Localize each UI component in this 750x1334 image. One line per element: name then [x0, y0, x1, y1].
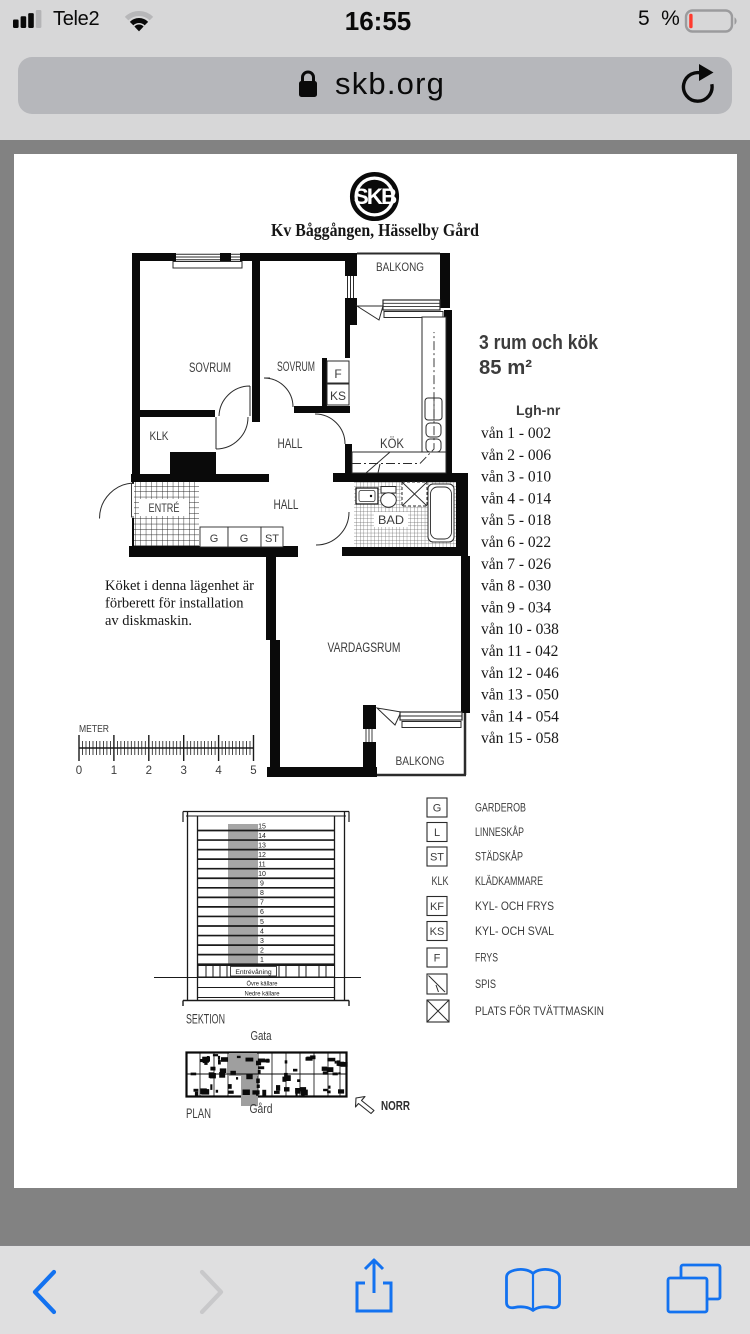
svg-text:2: 2 [260, 947, 264, 954]
svg-text:FRYS: FRYS [475, 953, 498, 965]
svg-text:9: 9 [260, 881, 264, 888]
svg-text:13: 13 [258, 842, 266, 849]
svg-text:METER: METER [79, 724, 109, 735]
svg-text:G: G [240, 533, 249, 545]
svg-text:KS: KS [330, 389, 346, 403]
svg-text:vån 3 - 010: vån 3 - 010 [481, 469, 551, 486]
svg-text:KS: KS [430, 926, 445, 938]
svg-text:vån 2 - 006: vån 2 - 006 [481, 447, 551, 464]
svg-text:1: 1 [260, 957, 264, 964]
svg-text:Entrévåning: Entrévåning [235, 968, 271, 976]
svg-text:GARDEROB: GARDEROB [475, 803, 526, 815]
svg-text:Kv Båggången, Hässelby Gård: Kv Båggången, Hässelby Gård [271, 220, 479, 240]
svg-text:vån 4 - 014: vån 4 - 014 [481, 490, 551, 507]
svg-text:BALKONG: BALKONG [376, 260, 424, 274]
svg-text:SKB: SKB [354, 184, 397, 209]
svg-text:PLATS FÖR TVÄTTMASKIN: PLATS FÖR TVÄTTMASKIN [475, 1006, 604, 1018]
svg-text:ST: ST [430, 852, 444, 864]
svg-text:vån 14 - 054: vån 14 - 054 [481, 708, 559, 725]
svg-text:Köket i denna lägenhet är: Köket i denna lägenhet är [105, 578, 254, 594]
svg-text:Gata: Gata [251, 1029, 272, 1043]
svg-text:SOVRUM: SOVRUM [277, 359, 315, 374]
svg-text:vån 1 - 002: vån 1 - 002 [481, 425, 551, 442]
svg-text:KF: KF [430, 901, 444, 913]
svg-text:Gård: Gård [250, 1102, 273, 1116]
svg-text:LINNESKÅP: LINNESKÅP [475, 826, 524, 839]
svg-text:vån 13 - 050: vån 13 - 050 [481, 687, 559, 704]
svg-text:KLK: KLK [432, 876, 449, 888]
svg-text:vån 10 - 038: vån 10 - 038 [481, 621, 559, 638]
svg-text:vån 15 - 058: vån 15 - 058 [481, 730, 559, 747]
svg-text:L: L [434, 827, 440, 839]
svg-text:8: 8 [260, 890, 264, 897]
svg-text:KÖK: KÖK [380, 436, 404, 451]
svg-text:11: 11 [258, 862, 265, 869]
svg-text:3: 3 [180, 765, 186, 777]
svg-text:KYL- OCH SVAL: KYL- OCH SVAL [475, 926, 555, 938]
svg-text:vån 7 - 026: vån 7 - 026 [481, 556, 551, 573]
svg-text:2: 2 [146, 765, 152, 777]
svg-text:vån 8 - 030: vån 8 - 030 [481, 578, 551, 595]
svg-text:G: G [433, 803, 442, 815]
svg-text:HALL: HALL [274, 497, 299, 512]
svg-text:STÄDSKÅP: STÄDSKÅP [475, 851, 523, 864]
svg-text:F: F [434, 953, 441, 965]
svg-text:KLK: KLK [150, 431, 169, 443]
svg-text:G: G [210, 533, 219, 545]
svg-text:ST: ST [265, 533, 279, 545]
svg-text:7: 7 [260, 900, 264, 907]
svg-text:5: 5 [260, 919, 264, 926]
svg-text:Övre källare: Övre källare [247, 980, 278, 988]
svg-text:KYL- OCH FRYS: KYL- OCH FRYS [475, 901, 554, 913]
svg-text:NORR: NORR [381, 1098, 410, 1113]
svg-text:vån 5 - 018: vån 5 - 018 [481, 512, 551, 529]
svg-text:vån 9 - 034: vån 9 - 034 [481, 599, 551, 616]
svg-text:av diskmaskin.: av diskmaskin. [105, 613, 192, 629]
svg-text:SEKTION: SEKTION [186, 1012, 225, 1027]
svg-text:4: 4 [260, 928, 264, 935]
svg-text:ENTRÉ: ENTRÉ [149, 502, 180, 515]
svg-text:KLÄDKAMMARE: KLÄDKAMMARE [475, 876, 543, 888]
svg-text:1: 1 [111, 765, 117, 777]
svg-text:0: 0 [76, 765, 82, 777]
svg-text:F: F [334, 367, 341, 381]
svg-text:PLAN: PLAN [186, 1106, 211, 1121]
svg-text:15: 15 [258, 823, 266, 830]
svg-text:14: 14 [258, 833, 266, 840]
svg-text:10: 10 [258, 871, 266, 878]
svg-text:vån 6 - 022: vån 6 - 022 [481, 534, 551, 551]
svg-text:85 m²: 85 m² [479, 357, 532, 379]
svg-text:förberett för installation: förberett för installation [105, 596, 244, 612]
svg-text:6: 6 [260, 909, 264, 916]
svg-text:vån 12 - 046: vån 12 - 046 [481, 665, 559, 682]
svg-text:vån 11 - 042: vån 11 - 042 [481, 643, 558, 660]
svg-text:4: 4 [215, 765, 222, 777]
svg-text:Lgh-nr: Lgh-nr [516, 402, 561, 418]
svg-text:VARDAGSRUM: VARDAGSRUM [328, 640, 401, 655]
svg-text:Nedre källare: Nedre källare [245, 991, 280, 998]
svg-text:BAD: BAD [378, 515, 404, 527]
svg-text:5: 5 [250, 765, 256, 777]
svg-text:SPIS: SPIS [475, 979, 496, 991]
svg-text:HALL: HALL [278, 436, 303, 451]
svg-text:3: 3 [260, 938, 264, 945]
svg-text:BALKONG: BALKONG [396, 754, 445, 768]
svg-text:SOVRUM: SOVRUM [189, 360, 231, 375]
svg-text:12: 12 [258, 852, 266, 859]
svg-text:3 rum och kök: 3 rum och kök [479, 332, 599, 354]
